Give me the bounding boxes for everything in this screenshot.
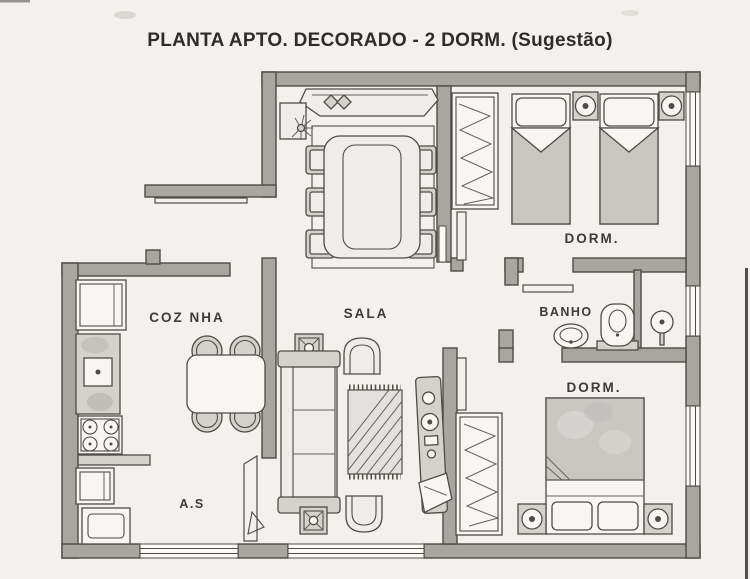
plan-title: PLANTA APTO. DECORADO - 2 DORM. (Sugestã… xyxy=(147,30,612,51)
door-jamb xyxy=(439,226,446,262)
bathroom: BANHO xyxy=(539,304,673,350)
living-room-label: SALA xyxy=(344,306,389,321)
wall-entry-left xyxy=(262,72,276,197)
kitchen-table-set xyxy=(187,336,265,432)
bathroom-sink xyxy=(554,324,588,348)
nightstand xyxy=(518,504,546,534)
wall-shower-partition xyxy=(634,270,641,348)
wall-bottom xyxy=(424,544,700,558)
wardrobe xyxy=(452,93,498,209)
bedroom-bottom: DORM. xyxy=(456,380,672,535)
wall-right xyxy=(686,336,700,406)
bedroom-bottom-door-leaf xyxy=(457,358,466,410)
fridge xyxy=(76,280,126,330)
kitchen-table xyxy=(187,355,265,413)
bathroom-door-leaf xyxy=(523,285,573,292)
sideboard xyxy=(300,89,438,116)
page-edge-shadow xyxy=(745,268,748,579)
wall-kitchen-top xyxy=(62,263,230,276)
service-area-label: A.S xyxy=(179,497,204,511)
single-bed xyxy=(512,94,570,224)
plant-table xyxy=(280,103,306,139)
scan-smudge xyxy=(114,11,136,19)
wall-right xyxy=(686,72,700,92)
wall-bath-top xyxy=(573,258,686,272)
nightstand xyxy=(573,92,598,120)
dining-table xyxy=(324,136,420,258)
pillow xyxy=(552,502,592,530)
wall-kitchen-pillar xyxy=(146,250,160,264)
washing-machine xyxy=(76,468,114,504)
side-table xyxy=(300,507,327,534)
pillow xyxy=(598,502,638,530)
dining-area xyxy=(280,89,438,268)
bedroom-top-door-leaf xyxy=(457,212,466,260)
armchair xyxy=(346,496,382,532)
bedroom-top: DORM. xyxy=(452,92,684,246)
kitchen-door-leaf xyxy=(244,456,257,541)
wall-entry-recess xyxy=(145,185,276,197)
window-bedroom-bottom xyxy=(686,406,700,486)
pillow xyxy=(516,98,566,126)
sofa xyxy=(278,351,340,513)
window-bedroom-top xyxy=(686,92,700,166)
wall-kitchen-living-divider xyxy=(262,258,276,458)
armchair xyxy=(344,338,380,374)
entrance-door xyxy=(155,198,247,203)
wall-bath-pier xyxy=(499,330,513,350)
kitchen-label: COZ NHA xyxy=(149,310,225,325)
pillow xyxy=(604,98,654,126)
window-kitchen-bottom xyxy=(140,544,238,558)
shower-head xyxy=(651,311,673,345)
wall-top xyxy=(262,72,700,86)
nightstand xyxy=(659,92,684,120)
scan-edge-mark xyxy=(0,0,30,3)
scanned-floor-plan-page: PLANTA APTO. DECORADO - 2 DORM. (Sugestã… xyxy=(0,0,750,579)
stove xyxy=(78,416,122,454)
double-bed xyxy=(546,398,644,534)
laundry-tank xyxy=(82,508,130,544)
single-bed xyxy=(600,94,658,224)
kitchen: COZ NHA A.S xyxy=(76,280,265,544)
wall-right xyxy=(686,166,700,286)
living-room: SALA xyxy=(278,306,458,534)
bedroom-bottom-label: DORM. xyxy=(567,380,622,395)
kitchen-counter xyxy=(76,334,120,414)
wall-bottom xyxy=(238,544,288,558)
wall-living-bedroom-bottom xyxy=(443,348,457,544)
toilet xyxy=(597,304,638,350)
wall-bath-bottom xyxy=(499,348,513,362)
scan-smudge xyxy=(621,10,639,16)
bathroom-label: BANHO xyxy=(539,305,592,319)
nightstand xyxy=(644,504,672,534)
bedroom-top-label: DORM. xyxy=(565,231,620,246)
window-bathroom xyxy=(686,286,700,336)
window-living-bottom xyxy=(288,544,424,558)
wall-bath-pier xyxy=(505,258,518,285)
counter-shelf xyxy=(78,455,150,465)
floor-plan-drawing: PLANTA APTO. DECORADO - 2 DORM. (Sugestã… xyxy=(0,0,750,579)
wardrobe xyxy=(456,413,502,535)
wall-right xyxy=(686,486,700,558)
wall-bottom xyxy=(62,544,140,558)
